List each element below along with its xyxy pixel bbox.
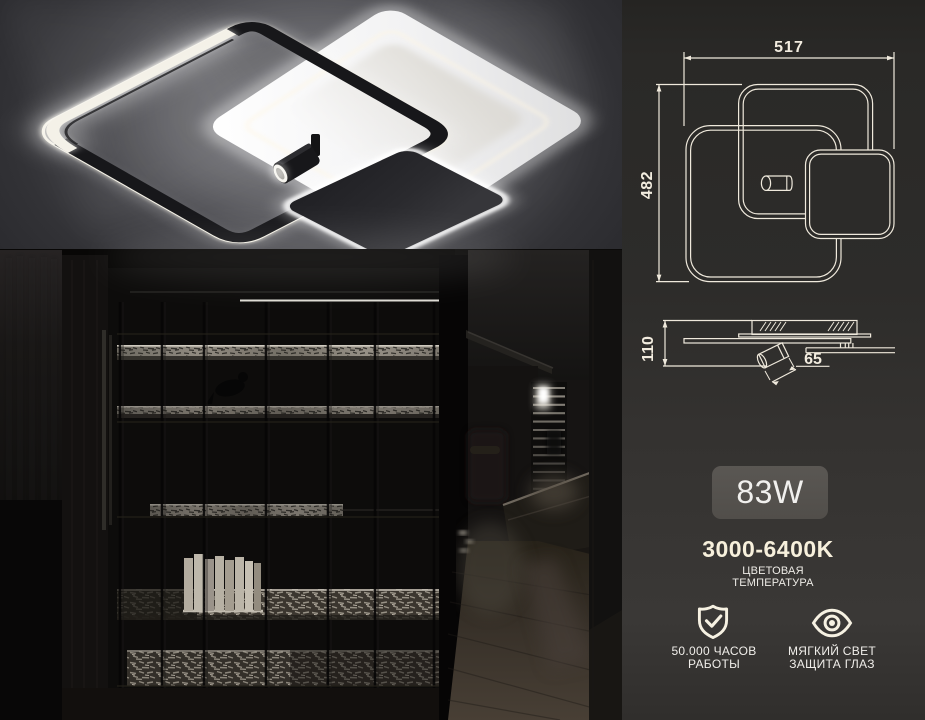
- svg-text:517: 517: [774, 39, 804, 56]
- svg-text:110: 110: [640, 336, 657, 362]
- svg-text:65: 65: [804, 351, 822, 368]
- svg-text:482: 482: [639, 171, 656, 199]
